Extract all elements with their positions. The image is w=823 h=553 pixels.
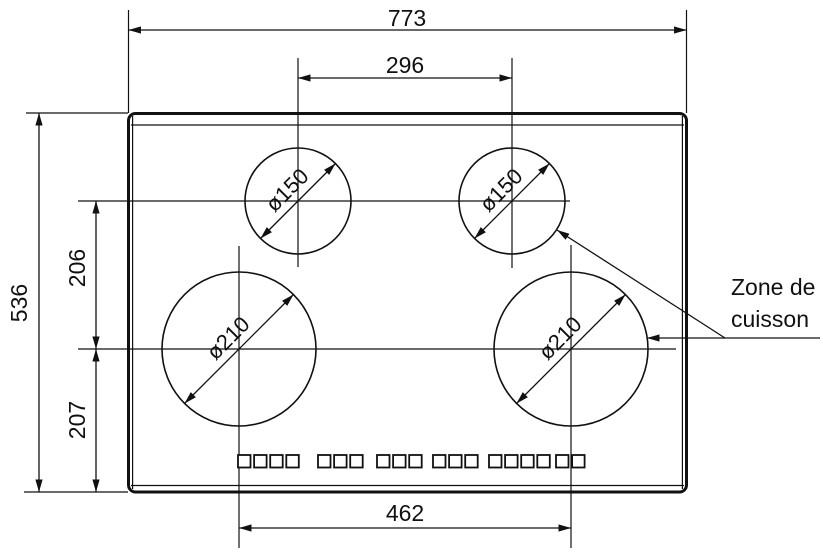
control-button-square (465, 455, 478, 468)
control-button-square (556, 455, 569, 468)
dim-text-top-burner-spacing: 296 (386, 52, 424, 78)
control-button-square (334, 455, 347, 468)
control-button-square (521, 455, 534, 468)
control-button-square (489, 455, 502, 468)
control-button-square (409, 455, 422, 468)
technical-drawing-page: 773 296 462 536 206 207 ø150 ø150 ø210 ø… (0, 0, 823, 553)
dim-text-overall-depth: 536 (6, 284, 32, 322)
dim-text-row-spacing: 206 (64, 249, 90, 287)
control-button-square (537, 455, 550, 468)
control-buttons-row (238, 455, 585, 468)
dim-text-overall-width: 773 (388, 5, 426, 31)
zone-label-line1: Zone de (731, 274, 815, 300)
control-button-square (449, 455, 462, 468)
control-button-square (270, 455, 283, 468)
cooktop-dimension-drawing: 773 296 462 536 206 207 ø150 ø150 ø210 ø… (0, 0, 823, 553)
control-button-square (254, 455, 267, 468)
control-button-square (238, 455, 251, 468)
control-button-square (572, 455, 585, 468)
control-button-square (433, 455, 446, 468)
control-button-square (318, 455, 331, 468)
zone-label-line2: cuisson (731, 306, 809, 332)
zone-label: Zone de cuisson (731, 274, 815, 332)
control-button-square (286, 455, 299, 468)
control-button-square (350, 455, 363, 468)
cooktop-outline (129, 114, 687, 493)
control-button-square (377, 455, 390, 468)
control-button-square (505, 455, 517, 468)
dim-text-bottom-burner-spacing: 462 (386, 500, 424, 526)
dim-text-front-offset: 207 (64, 401, 90, 439)
cooktop-body (129, 114, 687, 493)
control-button-square (393, 455, 406, 468)
